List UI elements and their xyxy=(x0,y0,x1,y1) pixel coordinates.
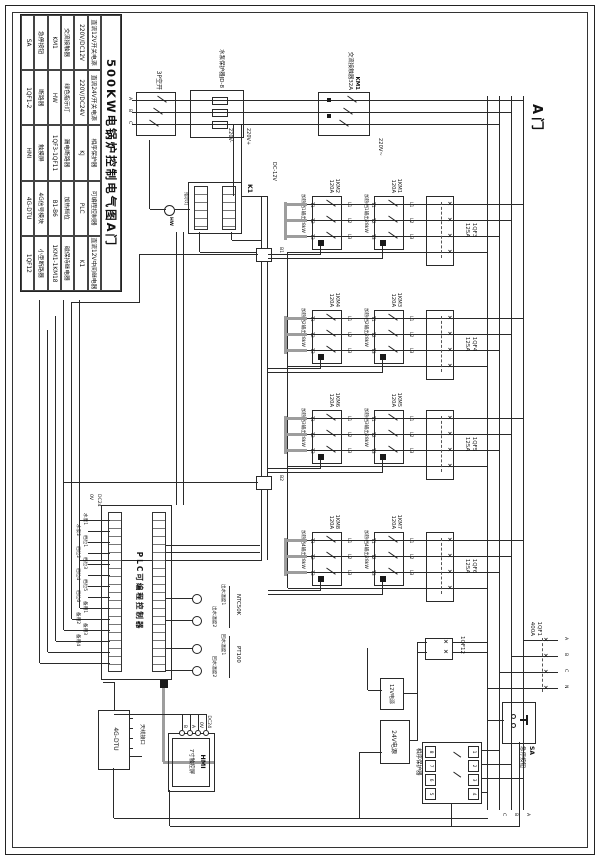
phase-label: A xyxy=(562,637,567,640)
plc-input-strip xyxy=(152,512,166,672)
voltage-label: 220V~ xyxy=(377,138,382,156)
wire xyxy=(132,124,500,125)
b1-label: B1 xyxy=(277,247,282,253)
sheet-door-label: A门 xyxy=(529,104,548,133)
wire xyxy=(482,778,524,779)
legend-table: 500KW电锅炉控制电气图A门 直流12V开关电源直流24V开关电源相序保护器可… xyxy=(20,14,122,292)
qf12-label: 1QF12 xyxy=(459,636,465,654)
control-run xyxy=(63,300,64,630)
temp-sensor xyxy=(192,616,202,626)
aux-contact xyxy=(327,98,331,102)
wire xyxy=(451,802,452,826)
wire xyxy=(166,545,260,546)
bus-label-c: C xyxy=(500,813,505,816)
wire xyxy=(149,140,150,209)
pp-terminal: 1 xyxy=(468,746,479,758)
v0-label: 0V xyxy=(87,494,92,500)
antenna-stub xyxy=(130,756,142,757)
contact-dot xyxy=(511,723,516,728)
output-label: 加热档1输出28kW xyxy=(299,194,304,233)
b1-junction xyxy=(256,248,272,262)
comm-connector xyxy=(160,680,168,688)
pp-terminal: 6 xyxy=(425,774,436,786)
wire xyxy=(183,232,184,505)
k1-label: K1 xyxy=(246,184,252,193)
wire xyxy=(175,209,190,210)
contactor-box xyxy=(312,196,342,250)
wire xyxy=(233,124,234,196)
km1-contactor-box xyxy=(318,92,370,136)
wire xyxy=(488,720,504,721)
hmi-sub: 7寸触控屏 xyxy=(187,738,194,785)
wire xyxy=(114,818,488,819)
pt100-label: PT100 xyxy=(235,646,240,663)
ps24-box: 24V电源 xyxy=(380,720,410,764)
wire xyxy=(140,254,258,255)
wire xyxy=(232,240,262,241)
km1-label: KM1交流接触器32A xyxy=(347,28,360,90)
group-breaker-box xyxy=(426,196,454,266)
aux-contact xyxy=(327,114,331,118)
pump-breaker-box xyxy=(136,92,176,136)
pp-terminal: 5 xyxy=(425,788,436,800)
ps12-box: 12V电源 xyxy=(380,678,404,710)
phase-label: B xyxy=(562,653,567,656)
b2-label: B2 xyxy=(277,475,282,481)
control-run xyxy=(39,300,40,663)
wire xyxy=(359,752,360,818)
coil xyxy=(318,240,324,246)
sa-name: 急停按钮 xyxy=(519,746,525,768)
bus-label-b: B xyxy=(512,813,517,816)
wire xyxy=(512,656,558,657)
drawing-sheet: A门 A B C A B C N 1QF1400A SA 急停按钮 1 2 3 … xyxy=(0,0,600,860)
wire xyxy=(524,640,558,641)
comm-cable xyxy=(163,688,166,762)
wire xyxy=(200,252,258,253)
control-run xyxy=(47,330,48,652)
wire xyxy=(500,672,558,673)
emergency-stop-box xyxy=(502,702,536,744)
wire xyxy=(166,552,260,553)
wire xyxy=(199,232,200,252)
wire xyxy=(64,482,258,483)
n-run xyxy=(287,252,288,588)
hw-label: HW xyxy=(167,217,172,226)
pump-phase: B xyxy=(126,109,131,112)
plc-title: PLC可编程控制器 xyxy=(135,512,144,670)
sa-label: SA xyxy=(528,746,534,755)
phase-label: C xyxy=(562,669,567,672)
wire xyxy=(482,792,488,793)
phase-label: N xyxy=(562,685,567,688)
mushroom-icon xyxy=(520,719,526,721)
wire xyxy=(242,196,268,197)
plc-output-strip xyxy=(108,512,122,672)
schematic-page: A门 A B C A B C N 1QF1400A SA 急停按钮 1 2 3 … xyxy=(0,0,600,860)
contactor-label: 1KM1120A xyxy=(390,159,402,193)
bus-label-a: A xyxy=(524,813,529,816)
pump-phase: C xyxy=(126,121,131,124)
mushroom-icon xyxy=(526,715,528,725)
wire xyxy=(113,768,114,818)
pp-terminal: 8 xyxy=(425,746,436,758)
dc24-label: DC24 xyxy=(95,494,100,507)
wire xyxy=(241,124,242,196)
main-breaker-label: 1QF1400A xyxy=(529,606,542,636)
wire xyxy=(170,826,520,827)
pp-terminal: 3 xyxy=(468,774,479,786)
pp-terminal: 4 xyxy=(468,788,479,800)
pump-breaker-label: 3P空开 xyxy=(155,54,162,90)
wire xyxy=(150,209,166,210)
pp-terminal: 7 xyxy=(425,760,436,772)
pump-phase: A xyxy=(126,97,131,100)
control-run xyxy=(55,316,56,641)
lamp-label: 指示灯 xyxy=(182,192,187,206)
group-breaker-label: 1QF3125A xyxy=(464,196,477,264)
wire xyxy=(72,302,140,303)
pp-terminal: 2 xyxy=(468,760,479,772)
drawing-title: 500KW电锅炉控制电气图A门 xyxy=(101,15,121,291)
output-label: 加热档1输出28kW xyxy=(362,194,367,233)
k1-terminal-strip xyxy=(194,186,208,230)
temp-sensor xyxy=(192,666,202,676)
wire xyxy=(417,642,418,740)
wire xyxy=(169,790,170,826)
phase-protector-label: 相序保护器 xyxy=(414,748,421,776)
b2-junction xyxy=(256,476,272,490)
wire xyxy=(482,750,500,751)
contact-dot xyxy=(511,714,516,719)
contactor-box xyxy=(374,196,404,250)
breaker-tie-line xyxy=(542,638,543,692)
wire xyxy=(482,764,512,765)
temp-sensor xyxy=(192,644,202,654)
indicator-lamp xyxy=(164,205,175,216)
antenna-label: 天线接口 xyxy=(139,724,144,745)
wire xyxy=(176,232,177,505)
v-minus-label: 220V- xyxy=(227,128,232,142)
dtu-label: 4G-DTU xyxy=(112,710,119,768)
coil xyxy=(380,240,386,246)
hmi-label: HMI xyxy=(198,738,206,785)
pump-protector-label: 水泵保护器JD-8 xyxy=(217,16,224,88)
v-plus-label: 220V+ xyxy=(245,128,250,145)
wire xyxy=(139,254,140,302)
ntc-label: NTC50K xyxy=(235,594,240,615)
dc12-label: DC-12V xyxy=(271,162,276,181)
temp-sensor xyxy=(192,594,202,604)
control-run xyxy=(79,300,80,608)
contactor-label: 1KM2120A xyxy=(328,159,340,193)
control-run xyxy=(71,302,72,619)
wire xyxy=(231,232,232,240)
